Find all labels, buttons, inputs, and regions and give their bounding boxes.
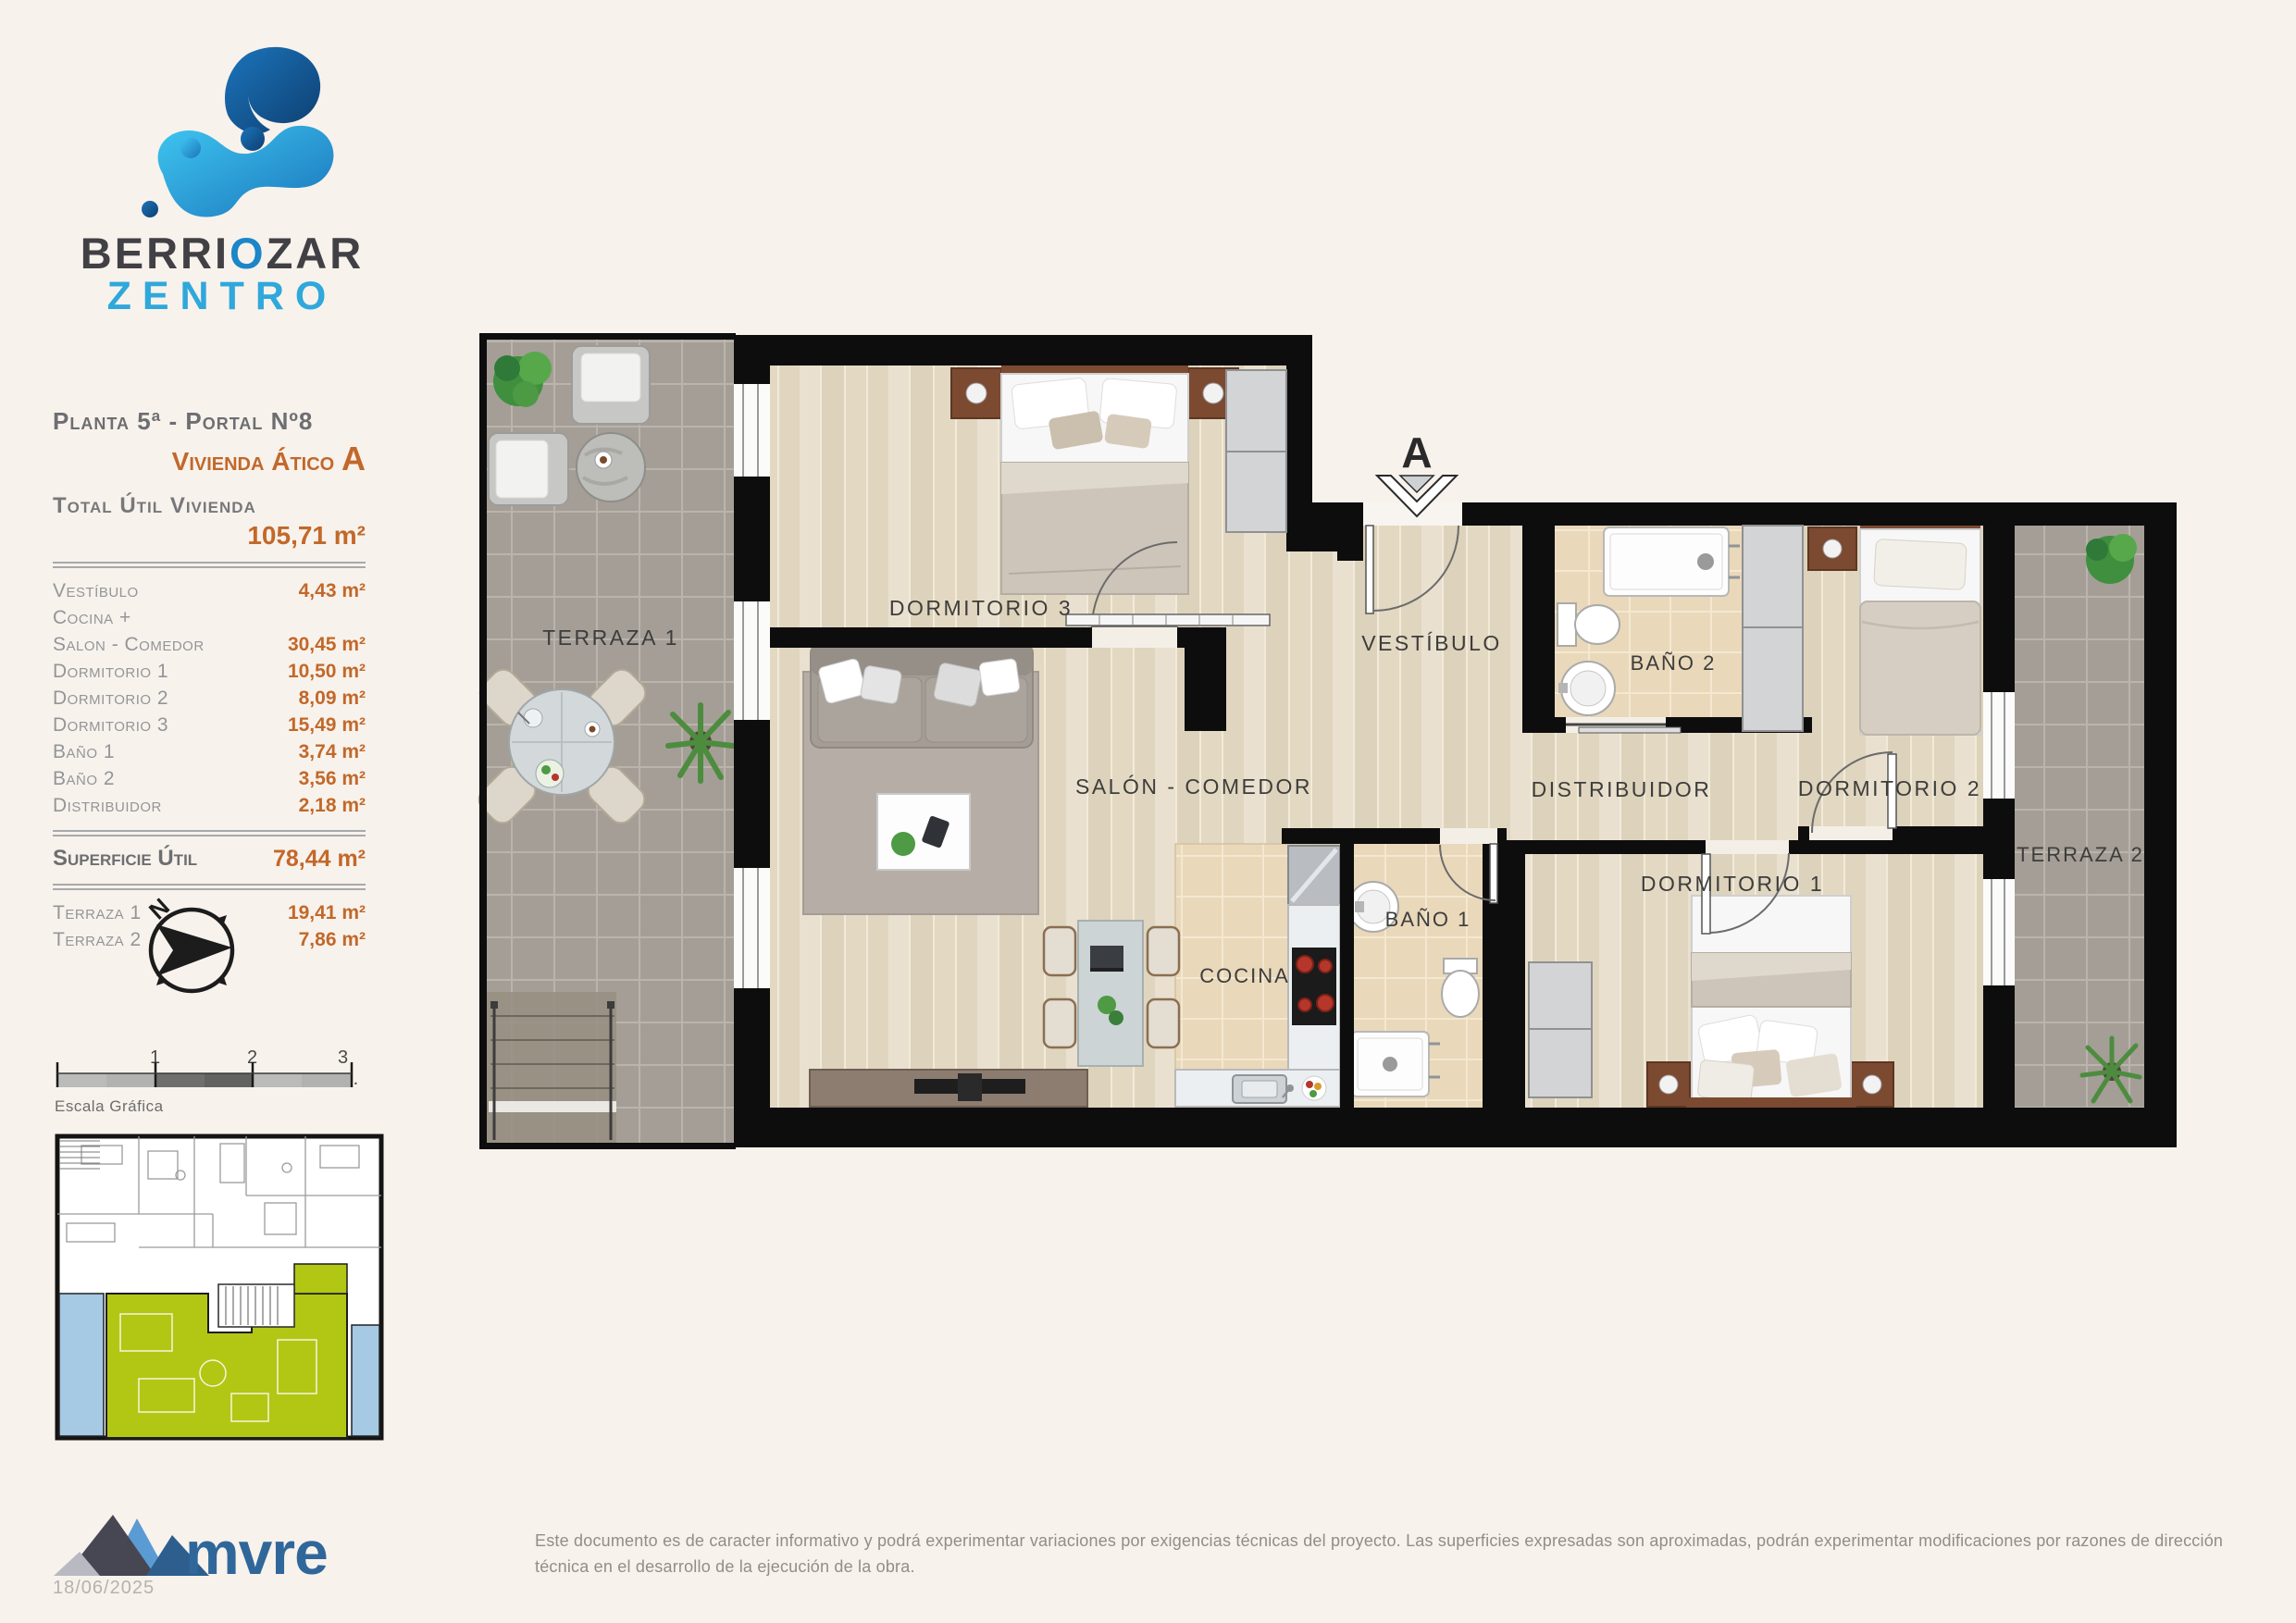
door-gap-dorm1 (1706, 840, 1789, 854)
room-label-bano1: BAÑO 1 (1385, 908, 1471, 931)
key-plan-terrace-right (352, 1325, 379, 1436)
area-row: Baño 13,74 m² (53, 738, 366, 765)
room-label-dormitorio2: DORMITORIO 2 (1798, 776, 1981, 800)
area-row: Distribuidor2,18 m² (53, 792, 366, 819)
brand-splash-icon (109, 35, 350, 234)
area-row: Cocina + (53, 604, 366, 631)
scale-bar (53, 1060, 367, 1094)
area-row-label: Cocina + (53, 604, 131, 631)
door-gap-dorm3 (1092, 627, 1177, 648)
superficie-util-value: 78,44 m² (273, 846, 366, 873)
superficie-util-label: Superficie Útil (53, 846, 197, 873)
dwelling-letter: A (341, 440, 366, 477)
area-row: Baño 23,56 m² (53, 765, 366, 792)
divider (53, 884, 366, 890)
area-row-value: 15,49 m² (288, 712, 366, 738)
mvre-logo: mvre (46, 1504, 416, 1582)
compass-icon: N (136, 895, 247, 1006)
terrace-row-value: 19,41 m² (288, 899, 366, 926)
brand-wordmark: BERRIOZAR ZENTRO (37, 231, 407, 318)
key-plan (46, 1127, 398, 1451)
window-dorm2-terrace2 (1983, 692, 2015, 799)
area-row: Dormitorio 110,50 m² (53, 658, 366, 685)
area-row-label: Baño 1 (53, 738, 115, 765)
entrance-letter: A (1401, 428, 1432, 477)
area-row-label: Dormitorio 3 (53, 712, 168, 738)
area-row-label: Vestíbulo (53, 577, 139, 604)
date-label: 18/06/2025 (53, 1578, 155, 1599)
area-row-value: 3,74 m² (299, 738, 366, 765)
area-row-label: Salon - Comedor (53, 631, 205, 658)
area-row-value: 30,45 m² (288, 631, 366, 658)
key-plan-core (218, 1284, 294, 1327)
area-row-value: 2,18 m² (299, 792, 366, 819)
dwelling-title: Vivienda Ático A (53, 440, 366, 478)
terrace-2-floor (2015, 526, 2144, 1108)
window-dorm3-terrace (734, 384, 770, 477)
door-gap-dorm2 (1809, 826, 1893, 840)
brand-name-bottom: ZENTRO (37, 275, 407, 318)
divider (53, 562, 366, 568)
area-row: Dormitorio 28,09 m² (53, 685, 366, 712)
door-gap-bath1 (1440, 828, 1497, 844)
room-label-distribuidor: DISTRIBUIDOR (1532, 777, 1712, 801)
room-label-terraza1: TERRAZA 1 (542, 626, 679, 650)
mvre-wordmark: mvre (185, 1518, 328, 1582)
floor-plan: A TERRAZA 1 DORMITORIO 3 VESTÍBULO BAÑO … (463, 324, 2193, 1157)
area-row: Dormitorio 315,49 m² (53, 712, 366, 738)
window-salon-terrace-1 (734, 601, 770, 720)
area-row-value: 3,56 m² (299, 765, 366, 792)
area-row-label: Dormitorio 2 (53, 685, 168, 712)
room-label-cocina: COCINA (1199, 964, 1290, 987)
scale-caption: Escala Gráfica (55, 1097, 164, 1116)
area-row: Vestíbulo4,43 m² (53, 577, 366, 604)
compass-north-label: N (143, 895, 175, 924)
superficie-util-row: Superficie Útil 78,44 m² (53, 846, 366, 873)
room-label-salon-comedor: SALÓN - COMEDOR (1075, 774, 1312, 799)
room-area-list: Vestíbulo4,43 m²Cocina +Salon - Comedor3… (53, 577, 366, 819)
total-util-label: Total Útil Vivienda (53, 493, 366, 519)
window-dorm1-terrace2 (1983, 879, 2015, 985)
floor-portal-title: Planta 5ª - Portal Nº8 (53, 407, 366, 436)
room-label-terraza2: TERRAZA 2 (2017, 843, 2144, 866)
room-label-vestibulo: VESTÍBULO (1361, 631, 1502, 655)
area-row-value: 8,09 m² (299, 685, 366, 712)
brand-name-top: BERRIOZAR (37, 231, 407, 275)
window-salon-terrace-2 (734, 868, 770, 988)
area-row-label: Distribuidor (53, 792, 162, 819)
area-summary-panel: Planta 5ª - Portal Nº8 Vivienda Ático A … (53, 407, 366, 953)
divider (53, 830, 366, 836)
disclaimer-text: Este documento es de caracter informativ… (535, 1529, 2275, 1580)
total-util-value: 105,71 m² (53, 521, 366, 551)
room-label-bano2: BAÑO 2 (1631, 651, 1717, 675)
area-row-value: 4,43 m² (299, 577, 366, 604)
area-row-value: 10,50 m² (288, 658, 366, 685)
brand-o-icon: O (230, 229, 267, 278)
radiator (1066, 614, 1270, 626)
terrace-row-label: Terraza 2 (53, 926, 142, 953)
area-row-label: Dormitorio 1 (53, 658, 168, 685)
room-label-dormitorio3: DORMITORIO 3 (889, 596, 1073, 620)
terrace-row-label: Terraza 1 (53, 899, 142, 926)
key-plan-terrace-left (59, 1294, 104, 1436)
key-plan-highlight-ext (294, 1264, 347, 1294)
area-row-label: Baño 2 (53, 765, 115, 792)
terrace-row-value: 7,86 m² (299, 926, 366, 953)
room-label-dormitorio1: DORMITORIO 1 (1641, 872, 1824, 896)
area-row: Salon - Comedor30,45 m² (53, 631, 366, 658)
